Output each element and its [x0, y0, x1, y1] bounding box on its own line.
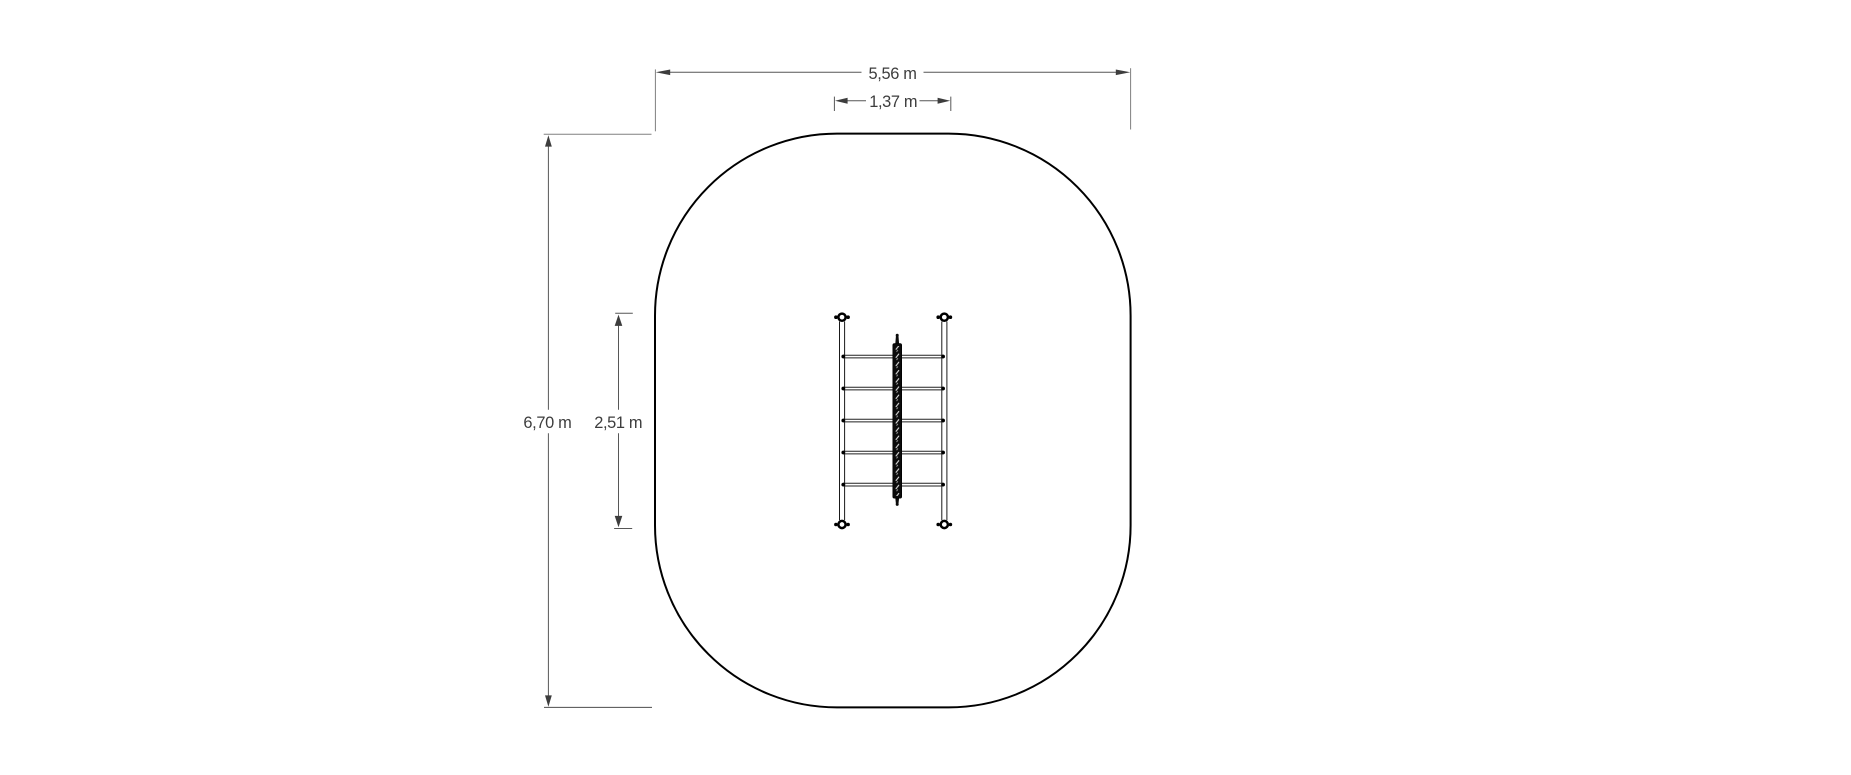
svg-text:6,70 m: 6,70 m [523, 414, 571, 432]
svg-text:2,51 m: 2,51 m [594, 414, 642, 432]
svg-text:5,56 m: 5,56 m [868, 65, 916, 83]
svg-text:1,37 m: 1,37 m [869, 93, 917, 111]
